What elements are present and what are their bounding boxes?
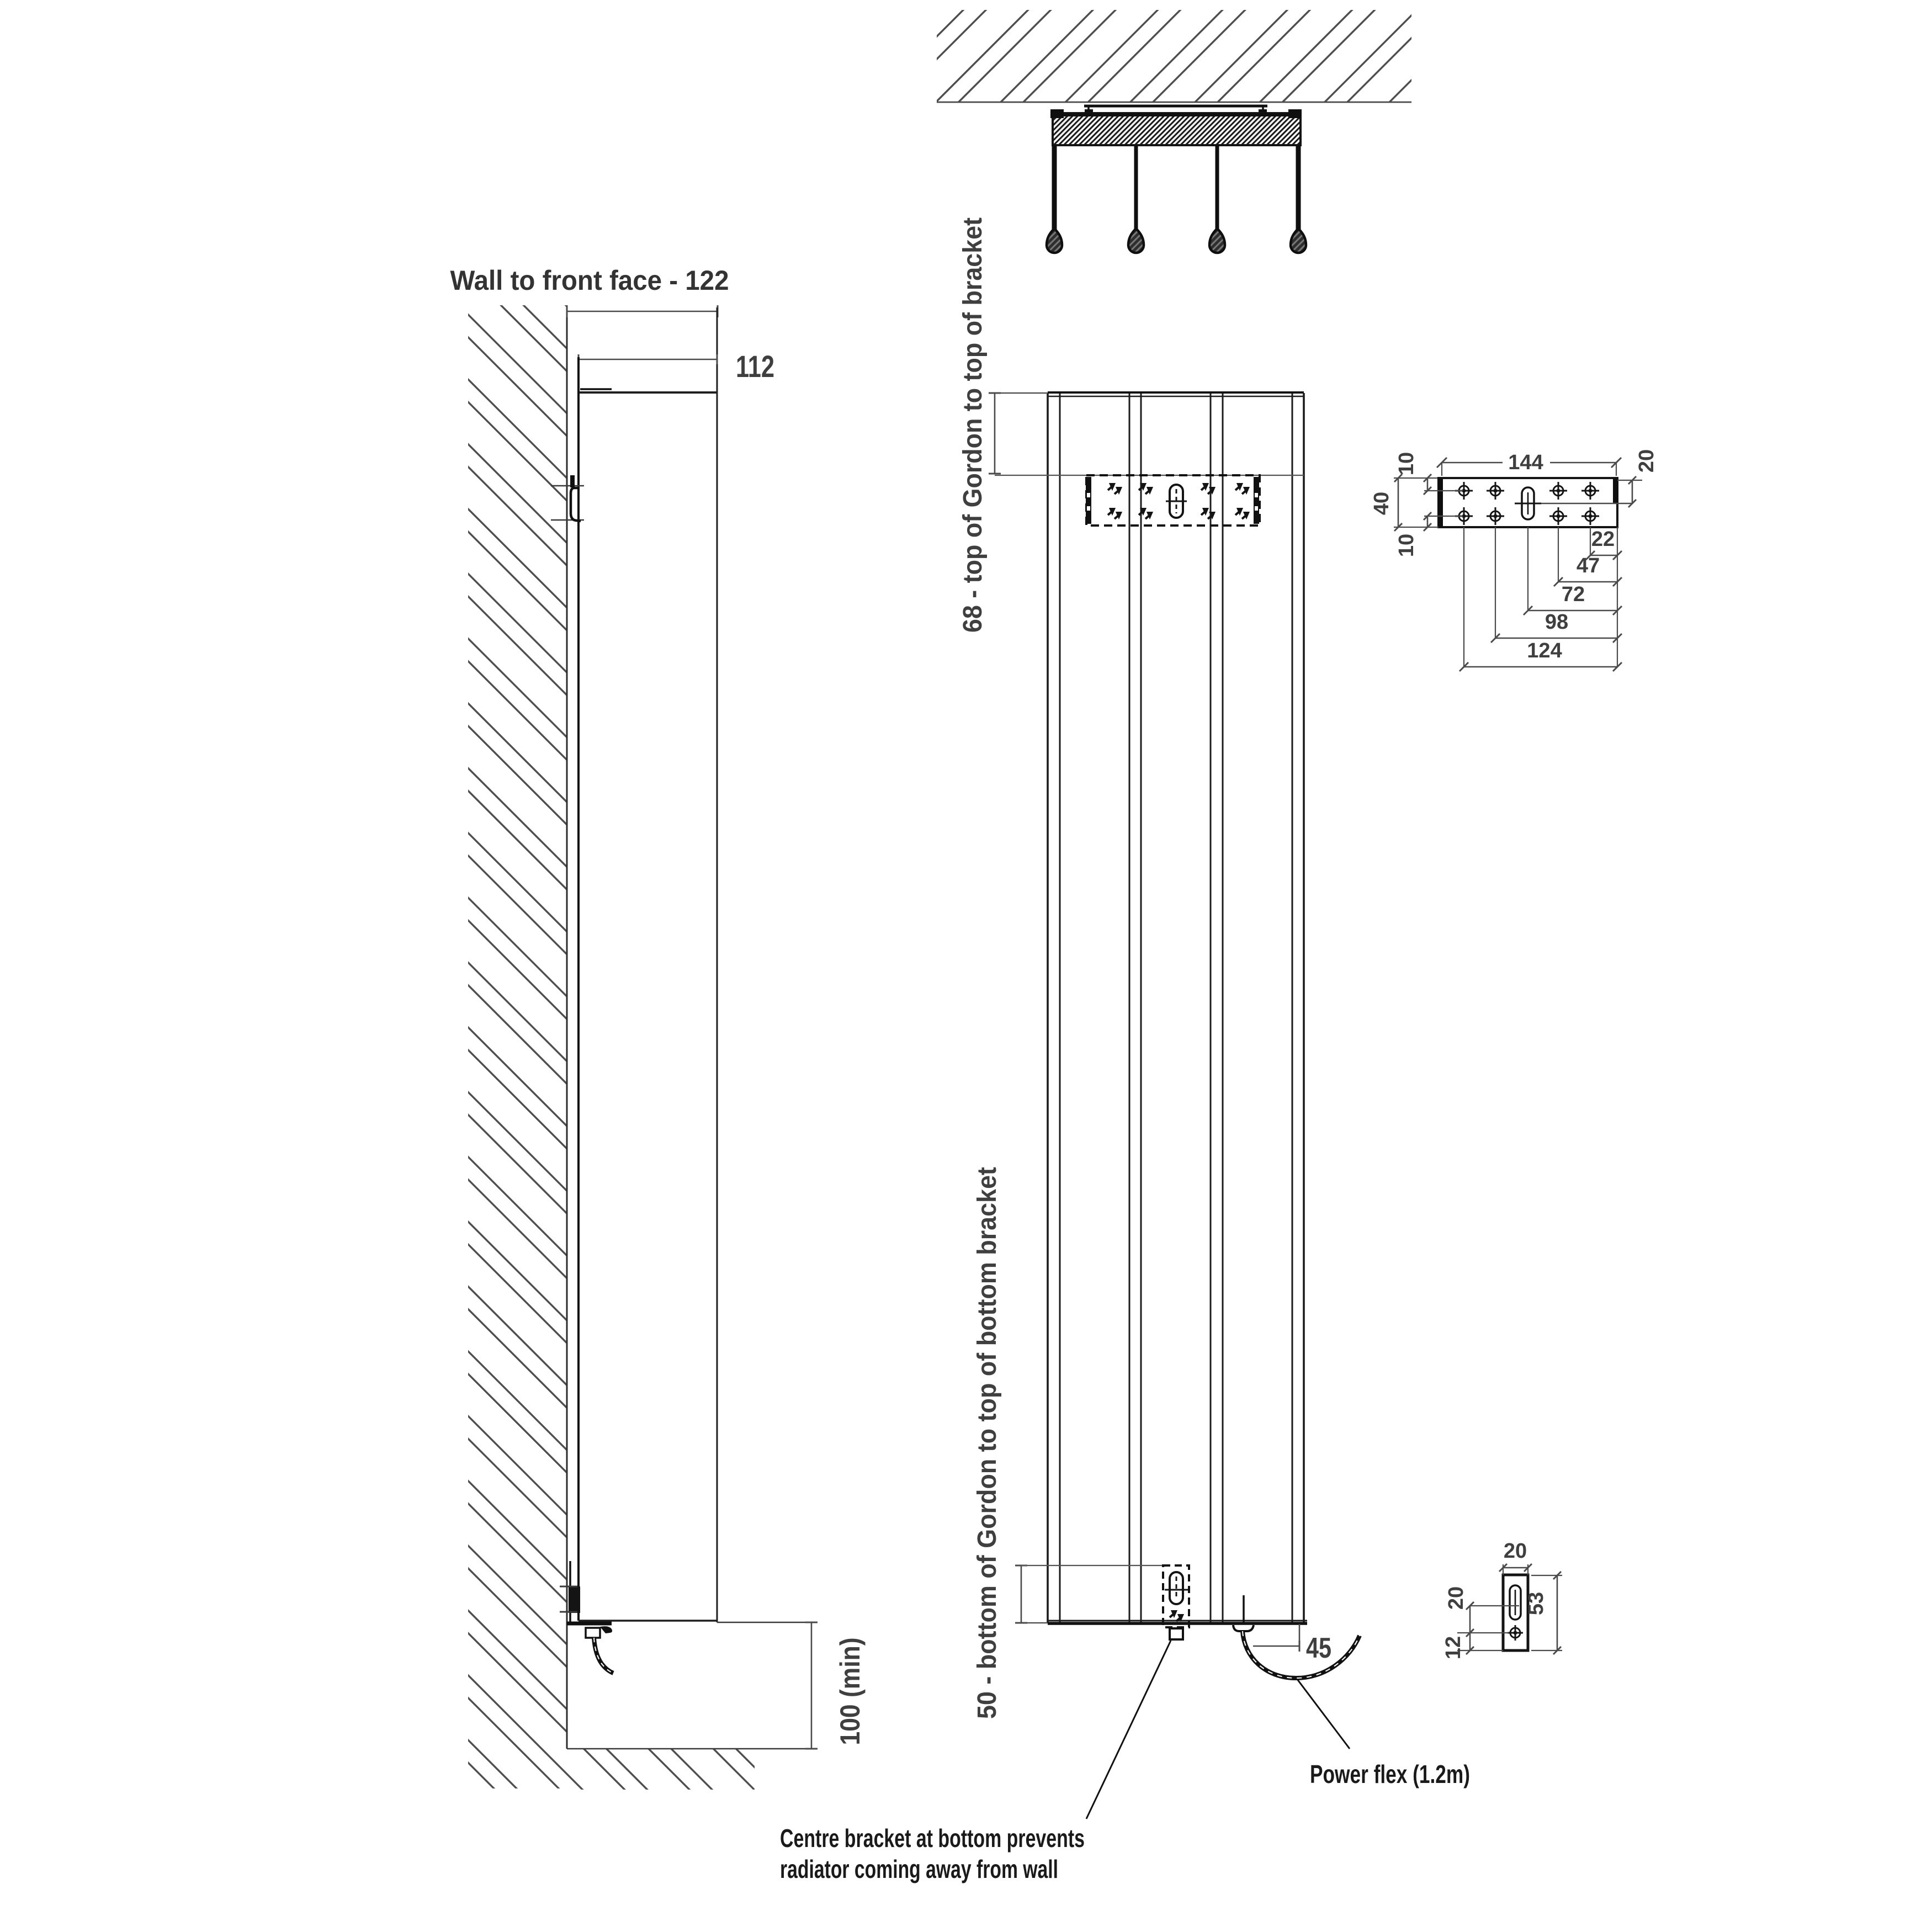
svg-text:20: 20 — [1445, 1586, 1468, 1610]
svg-text:Power flex (1.2m): Power flex (1.2m) — [1310, 1760, 1470, 1788]
svg-text:45: 45 — [1306, 1632, 1331, 1664]
svg-text:47: 47 — [1577, 554, 1600, 577]
svg-text:Wall to front face - 122: Wall to front face - 122 — [450, 265, 729, 296]
svg-text:68 - top of Gordon to top of b: 68 - top of Gordon to top of bracket — [958, 217, 988, 633]
svg-text:124: 124 — [1527, 639, 1562, 662]
svg-text:112: 112 — [736, 349, 774, 384]
svg-text:20: 20 — [1504, 1540, 1527, 1563]
svg-text:40: 40 — [1370, 492, 1393, 515]
svg-text:Centre bracket at bottom preve: Centre bracket at bottom prevents — [780, 1824, 1085, 1853]
svg-text:radiator coming away from wall: radiator coming away from wall — [780, 1855, 1058, 1883]
svg-text:10: 10 — [1395, 452, 1418, 475]
svg-text:98: 98 — [1545, 611, 1568, 634]
svg-text:22: 22 — [1591, 528, 1615, 551]
svg-text:12: 12 — [1442, 1636, 1465, 1659]
svg-text:100 (min): 100 (min) — [835, 1638, 866, 1745]
svg-text:50 - bottom of Gordon to top o: 50 - bottom of Gordon to top of bottom b… — [973, 1167, 1002, 1719]
svg-text:10: 10 — [1395, 534, 1418, 557]
svg-text:53: 53 — [1525, 1592, 1548, 1615]
svg-text:20: 20 — [1635, 449, 1658, 473]
svg-text:144: 144 — [1508, 451, 1543, 474]
svg-text:72: 72 — [1562, 583, 1585, 606]
